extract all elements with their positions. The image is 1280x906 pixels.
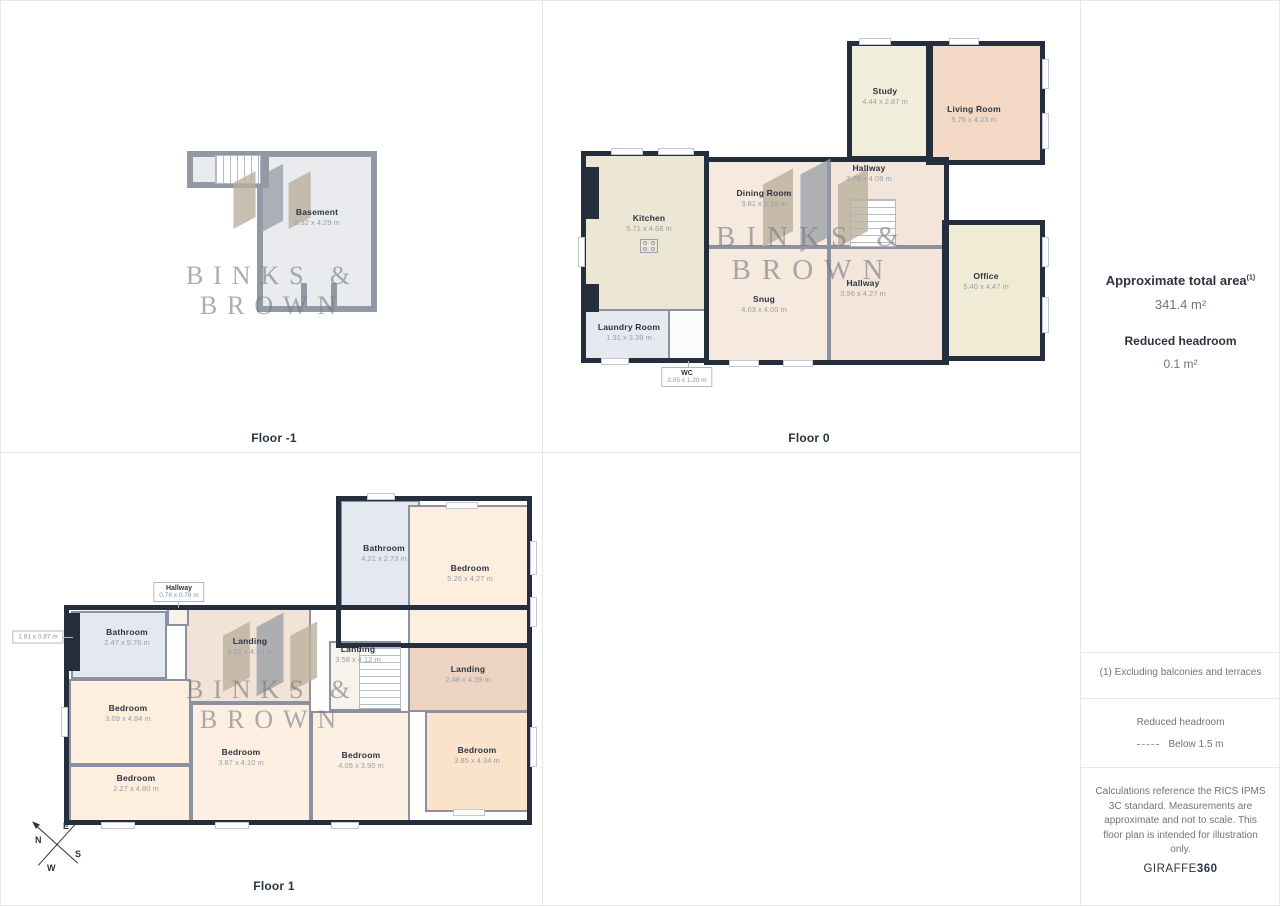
room-landing [185, 608, 311, 703]
total-area-label: Approximate total area(1) [1080, 273, 1280, 288]
room-label: Bedroom3.87 x 4.10 m [218, 747, 263, 767]
room-area [668, 309, 706, 361]
room-snug [707, 247, 829, 363]
room-living-room [928, 44, 1043, 163]
wall-segment [66, 613, 80, 671]
window-marker [215, 822, 249, 829]
dimension-callout: 1.81 x 0.87 m [12, 631, 63, 644]
dimension-callout: Hallway0.78 x 0.78 m [153, 582, 204, 602]
stairs [850, 199, 896, 247]
wall-segment [584, 167, 599, 219]
room-bedroom [408, 505, 529, 646]
room-label: Hallway3.78 x 4.09 m [846, 163, 891, 183]
window-marker [729, 360, 759, 367]
room-bedroom [311, 711, 410, 822]
room-label: Landing3.62 x 4.19 m [227, 636, 272, 656]
window-marker [530, 727, 537, 767]
wall-outline [704, 157, 949, 365]
binks-brown-logo-icon [763, 159, 871, 257]
room-label: Bathroom4.21 x 2.73 m [361, 543, 406, 563]
room-label: Bathroom2.47 x 5.76 m [104, 627, 149, 647]
window-marker [453, 809, 485, 816]
reduced-headroom-label: Reduced headroom [1080, 334, 1280, 348]
stairs [359, 647, 401, 709]
room-label: Bedroom2.27 x 4.80 m [113, 773, 158, 793]
sidebar-divider [1080, 767, 1280, 768]
window-marker [61, 707, 68, 737]
legend-value: Below 1.5 m [1168, 739, 1223, 750]
sidebar-divider [1080, 652, 1280, 653]
window-marker [1042, 113, 1049, 149]
compass-n: N [35, 835, 42, 845]
wall-segment [584, 284, 599, 312]
wall-outline [847, 41, 933, 161]
grid-divider-vertical [542, 1, 543, 906]
room-bedroom [191, 703, 311, 822]
room-label: Landing3.58 x 4.12 m [335, 644, 380, 664]
window-marker [367, 493, 395, 500]
grid-divider-horizontal [1, 452, 1080, 453]
window-marker [601, 358, 629, 365]
window-marker [783, 360, 813, 367]
room-hallway [829, 247, 946, 363]
window-marker [1042, 59, 1049, 89]
room-hallway [829, 160, 946, 247]
room-bathroom [340, 500, 420, 608]
stove-icon [640, 239, 658, 253]
room-label: Landing2.48 x 4.39 m [445, 664, 490, 684]
compass-s: S [75, 849, 81, 859]
floorplan-sheet: Basement5.32 x 4.29 m Kitchen5.71 x 4.68… [0, 0, 1280, 906]
window-marker [1042, 237, 1049, 267]
wall-outline [581, 151, 709, 363]
compass: N E S W [25, 813, 89, 877]
room-label: Office5.40 x 4.47 m [963, 271, 1008, 291]
room-bedroom [425, 711, 529, 812]
stairs [215, 155, 261, 184]
info-panel: Approximate total area(1) 341.4 m² Reduc… [1080, 1, 1280, 906]
window-marker [1042, 297, 1049, 333]
dimension-callout: WC2.05 x 1.20 m [661, 367, 712, 387]
callout-leader [178, 602, 179, 608]
room-kitchen [584, 154, 706, 311]
room-basement [257, 151, 377, 312]
room-label: Bedroom4.05 x 3.90 m [338, 750, 383, 770]
giraffe360-logo: GIRAFFE360 [1080, 863, 1280, 875]
watermark-text: BINKS &BROWN [186, 261, 360, 321]
wall-outline [942, 220, 1045, 361]
room-study [850, 44, 930, 158]
wall-segment [301, 283, 307, 312]
window-marker [446, 502, 478, 509]
window-marker [658, 148, 694, 155]
window-marker [611, 148, 643, 155]
room-laundry-room [584, 309, 670, 361]
room-label: Hallway3.96 x 4.27 m [840, 278, 885, 298]
window-marker [530, 597, 537, 627]
compass-e: E [63, 821, 69, 831]
legend-title: Reduced headroom [1080, 717, 1280, 728]
window-marker [859, 38, 891, 45]
room-landing [329, 641, 401, 711]
watermark-text: BINKS &BROWN [716, 221, 910, 288]
room-dining-room [707, 160, 829, 247]
compass-ew-axis [38, 823, 76, 865]
reduced-headroom-legend: Reduced headroom Below 1.5 m [1080, 717, 1280, 750]
wall-outline [187, 151, 269, 188]
floor-label-1: Floor 1 [253, 879, 294, 893]
disclaimer-text: Calculations reference the RICS IPMS 3C … [1094, 785, 1267, 858]
room-bathroom [71, 611, 167, 679]
binks-brown-logo-icon [223, 613, 319, 700]
total-area-block: Approximate total area(1) 341.4 m² Reduc… [1080, 273, 1280, 371]
wall-segment [331, 283, 337, 312]
room-label: Bedroom3.09 x 4.84 m [105, 703, 150, 723]
wall-outline [64, 605, 532, 825]
room-label: Dining Room3.81 x 5.16 m [736, 188, 791, 208]
watermark-text: BINKS &BROWN [186, 675, 360, 735]
window-marker [530, 541, 537, 575]
room-bedroom [69, 679, 191, 765]
binks-brown-logo-icon [233, 164, 312, 236]
wall-outline [336, 496, 532, 648]
room-label: Study4.44 x 2.87 m [862, 86, 907, 106]
sidebar-divider [1080, 698, 1280, 699]
wall-outline [257, 151, 377, 312]
reduced-headroom-value: 0.1 m² [1080, 357, 1280, 371]
window-marker [101, 822, 135, 829]
legend-row: Below 1.5 m [1080, 739, 1280, 750]
room-label: Living Room5.76 x 4.23 m [947, 104, 1001, 124]
room-label: Kitchen5.71 x 4.68 m [626, 213, 671, 233]
compass-w: W [47, 863, 56, 873]
callout-leader [61, 637, 73, 638]
window-marker [578, 237, 585, 267]
room-area [167, 608, 189, 626]
room-label: Bedroom3.85 x 4.34 m [454, 745, 499, 765]
window-marker [949, 38, 979, 45]
room-label: Snug4.03 x 4.00 m [741, 294, 786, 314]
window-marker [331, 822, 359, 829]
footnote-excluding-balconies: (1) Excluding balconies and terraces [1088, 667, 1273, 678]
room-office [945, 223, 1044, 359]
wall-outline [926, 41, 1045, 165]
callout-leader [688, 361, 689, 369]
total-area-value: 341.4 m² [1080, 297, 1280, 312]
room-area [187, 151, 269, 188]
room-label: Basement5.32 x 4.29 m [294, 207, 339, 227]
room-label: Bedroom5.26 x 4.27 m [447, 563, 492, 583]
floor-label-minus-1: Floor -1 [251, 431, 297, 445]
floor-label-0: Floor 0 [788, 431, 829, 445]
room-landing [408, 646, 529, 712]
dashed-line-sample [1137, 744, 1159, 745]
room-label: Laundry Room1.31 x 3.39 m [598, 322, 660, 342]
